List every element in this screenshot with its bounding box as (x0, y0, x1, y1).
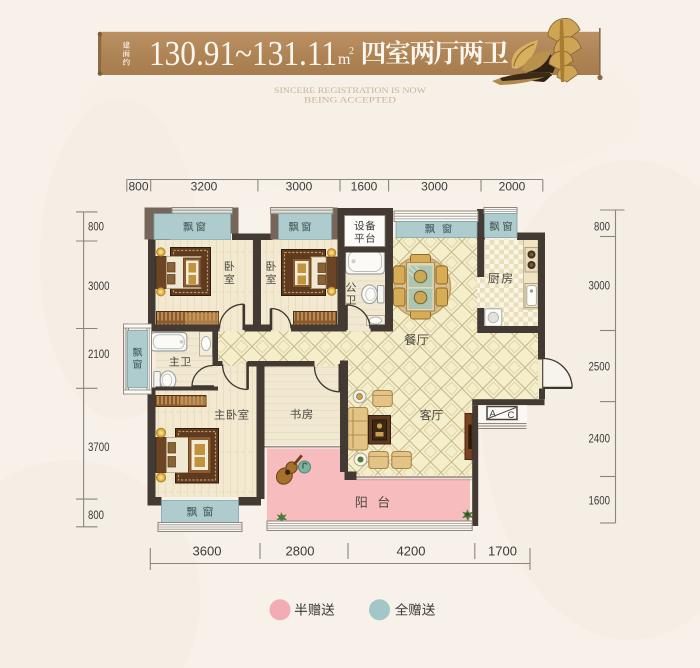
svg-text:3000: 3000 (286, 180, 313, 194)
svg-text:3000: 3000 (421, 180, 448, 194)
svg-text:3000: 3000 (589, 279, 611, 293)
svg-text:2400: 2400 (589, 431, 611, 445)
svg-text:2800: 2800 (286, 544, 315, 559)
svg-text:1600: 1600 (351, 180, 378, 194)
svg-text:2100: 2100 (88, 347, 110, 361)
svg-text:800: 800 (88, 508, 104, 522)
svg-text:3600: 3600 (193, 544, 222, 559)
svg-text:3000: 3000 (88, 279, 110, 293)
svg-text:2500: 2500 (589, 359, 611, 373)
svg-text:BEING ACCEPTED: BEING ACCEPTED (304, 96, 396, 105)
svg-text:A: A (490, 409, 497, 420)
svg-text:C: C (508, 410, 515, 421)
svg-text:3200: 3200 (191, 180, 218, 194)
svg-text:3700: 3700 (88, 440, 110, 454)
svg-text:800: 800 (88, 219, 104, 233)
svg-text:2000: 2000 (499, 180, 526, 194)
svg-text:2: 2 (349, 46, 354, 57)
svg-text:800: 800 (594, 220, 610, 234)
svg-text:130.91~131.11: 130.91~131.11 (149, 34, 337, 73)
svg-text:1600: 1600 (589, 493, 611, 507)
svg-text:800: 800 (128, 180, 148, 194)
svg-text:SINCERE REGISTRATION IS NOW: SINCERE REGISTRATION IS NOW (274, 86, 427, 95)
svg-text:4200: 4200 (397, 544, 426, 559)
svg-text:1700: 1700 (488, 544, 517, 559)
